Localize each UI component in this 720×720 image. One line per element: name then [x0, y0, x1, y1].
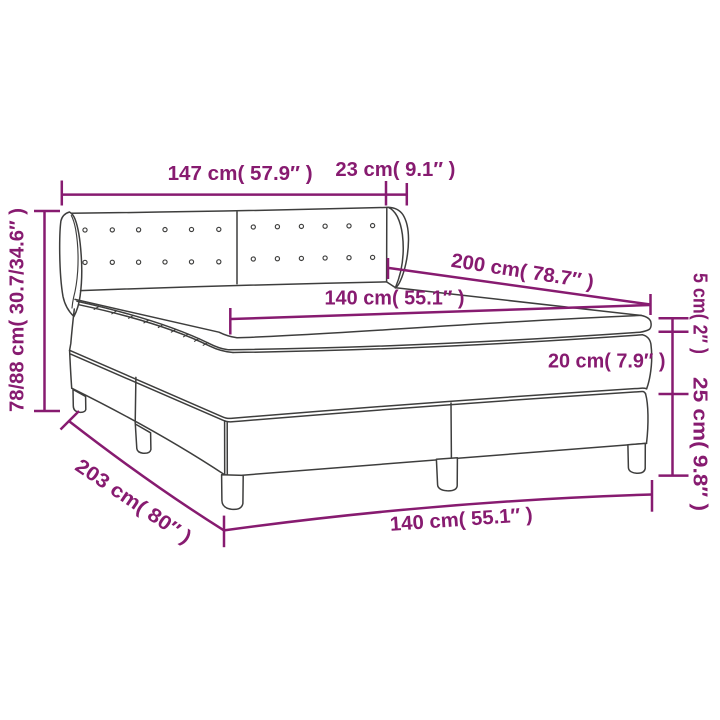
svg-text:5 cm( 2″ ): 5 cm( 2″ ): [689, 273, 711, 354]
svg-text:78/88 cm( 30.7/34.6″ ): 78/88 cm( 30.7/34.6″ ): [7, 208, 29, 412]
svg-text:20 cm( 7.9″ ): 20 cm( 7.9″ ): [548, 351, 666, 373]
svg-text:147 cm( 57.9″ ): 147 cm( 57.9″ ): [168, 163, 313, 185]
svg-text:25 cm( 9.8″ ): 25 cm( 9.8″ ): [689, 377, 711, 511]
svg-text:23 cm( 9.1″ ): 23 cm( 9.1″ ): [335, 159, 455, 181]
svg-text:140 cm( 55.1″ ): 140 cm( 55.1″ ): [325, 287, 465, 309]
